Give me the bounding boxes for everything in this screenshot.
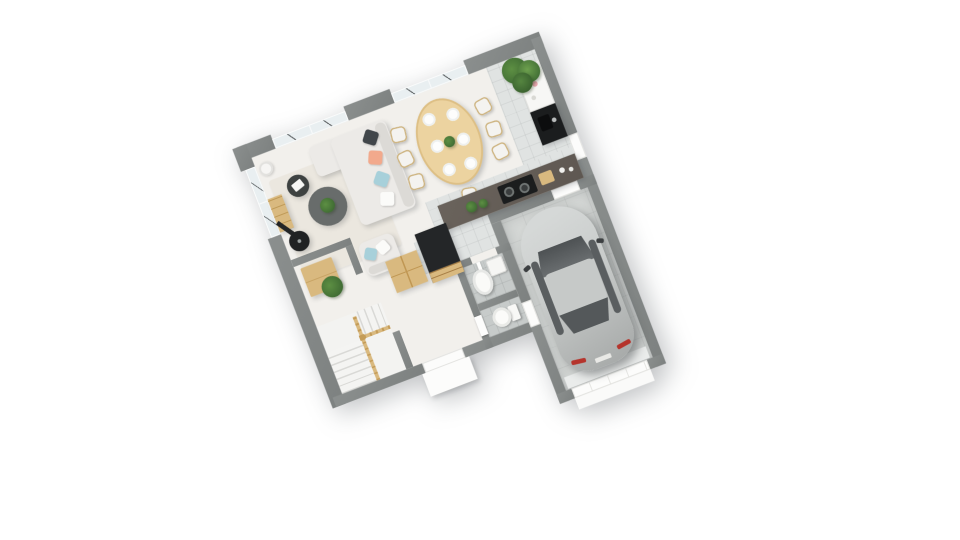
dining-chair — [484, 119, 504, 139]
counter-jar — [568, 166, 574, 172]
counter-herbs — [477, 197, 489, 209]
dining-chair — [472, 95, 493, 116]
dining-chair — [389, 125, 408, 144]
car-mirror-right — [596, 238, 604, 243]
floor-plan — [238, 36, 671, 494]
cutting-board — [538, 169, 555, 185]
sink-faucet — [551, 117, 557, 123]
sofa-pillow-white — [380, 192, 394, 206]
dining-chair — [490, 141, 511, 162]
dining-chair — [407, 172, 426, 191]
pot — [518, 181, 531, 194]
counter-herbs — [464, 200, 478, 214]
counter-jar — [558, 167, 565, 174]
sink-basin — [537, 114, 554, 132]
stove-handle — [297, 239, 302, 244]
armchair-pillow-blue — [364, 247, 378, 261]
floor-plan-scene — [0, 0, 960, 540]
coffee-table-plant — [318, 196, 337, 215]
dining-chair — [395, 148, 416, 169]
pot — [503, 185, 516, 198]
side-table-tray — [291, 179, 305, 193]
sofa-pillow-peach — [368, 150, 383, 165]
